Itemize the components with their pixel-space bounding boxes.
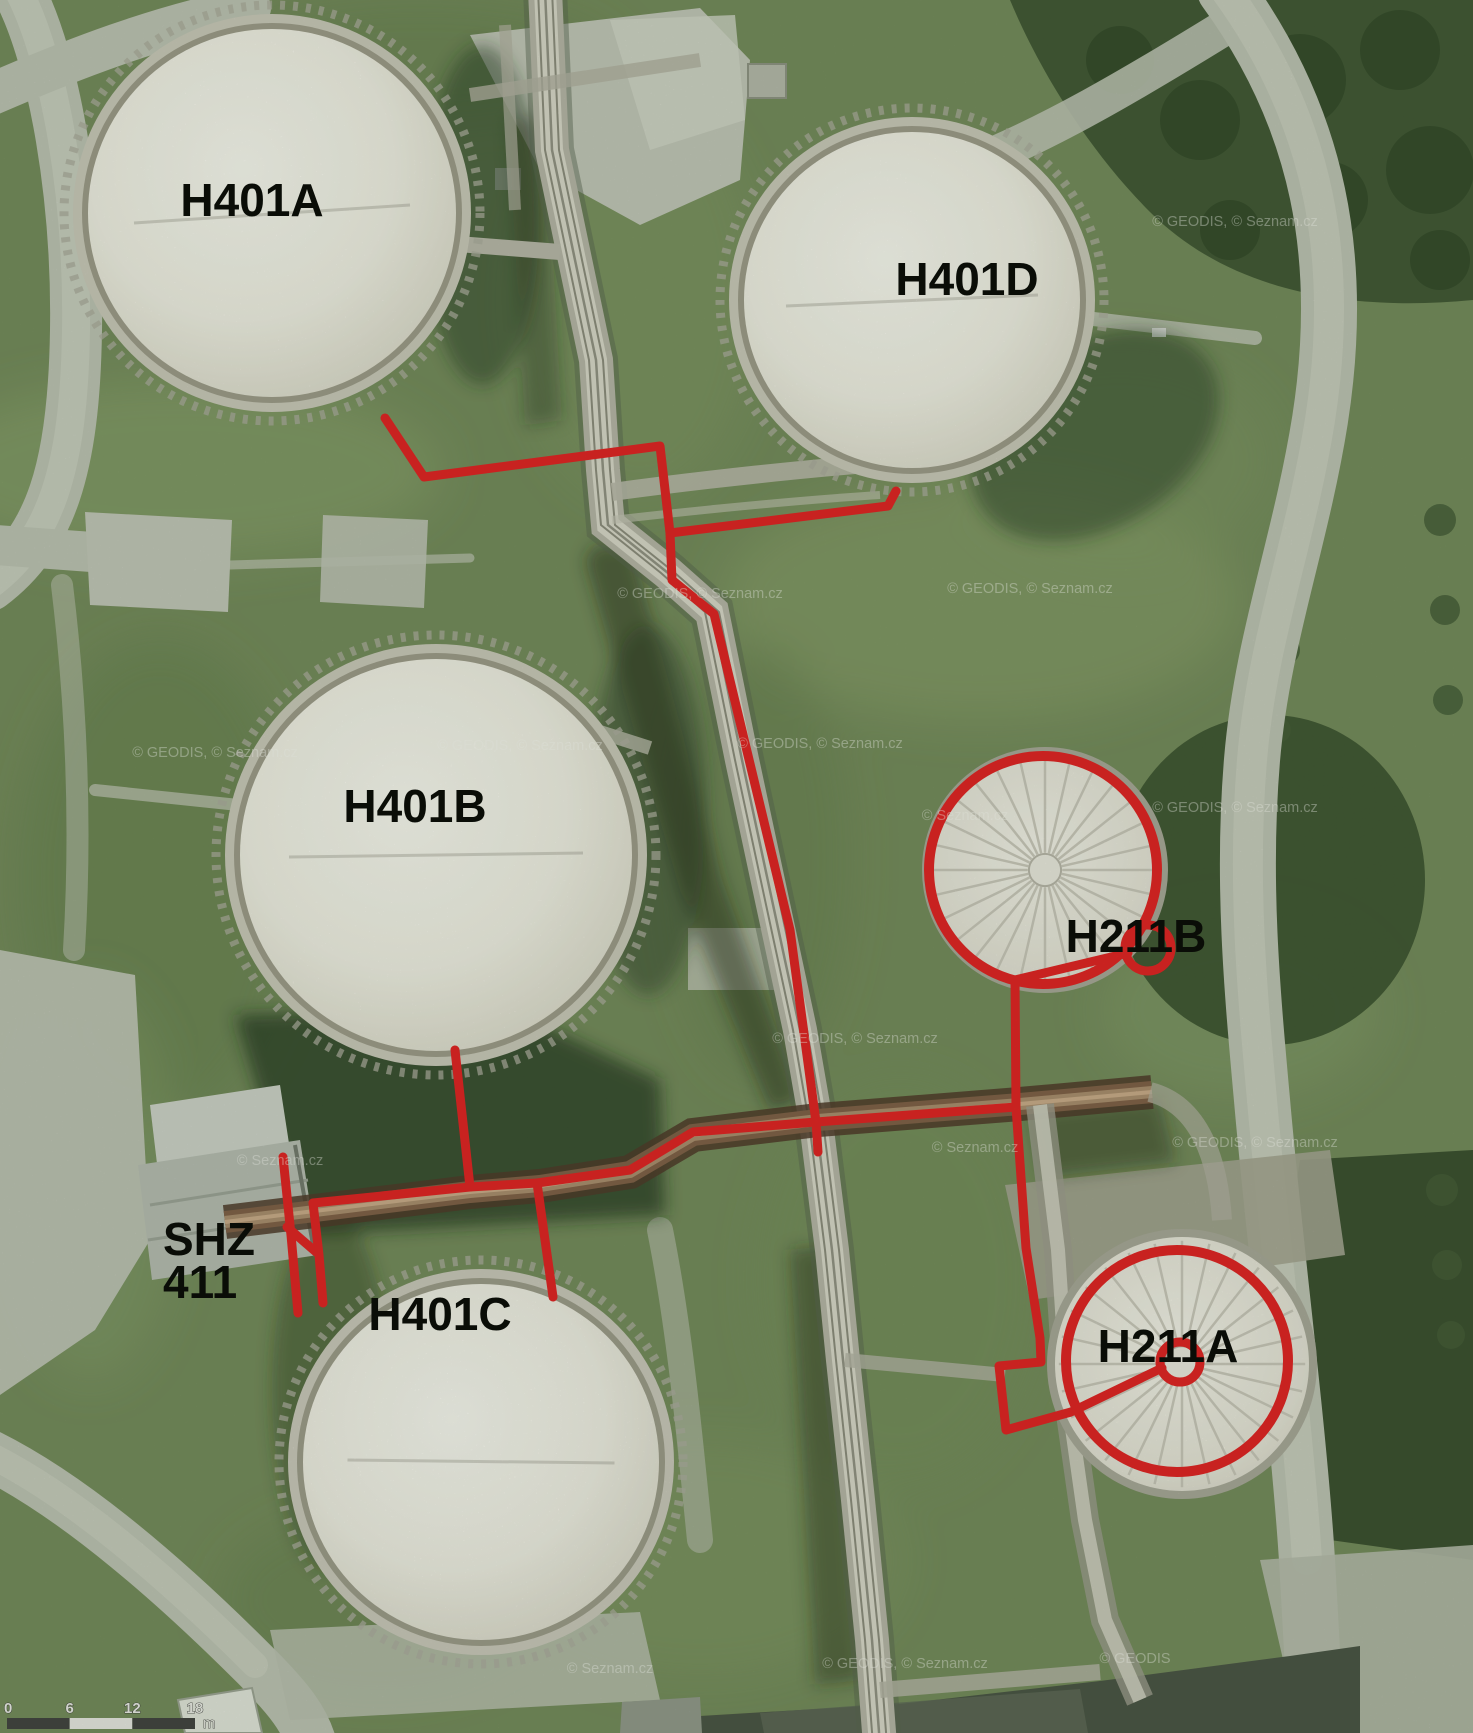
photo-grain [0,0,1473,1733]
scene-svg: H401AH401DH401BH401CH211BH211ASHZ411 © G… [0,0,1473,1733]
aerial-annotated-map: H401AH401DH401BH401CH211BH211ASHZ411 © G… [0,0,1473,1733]
